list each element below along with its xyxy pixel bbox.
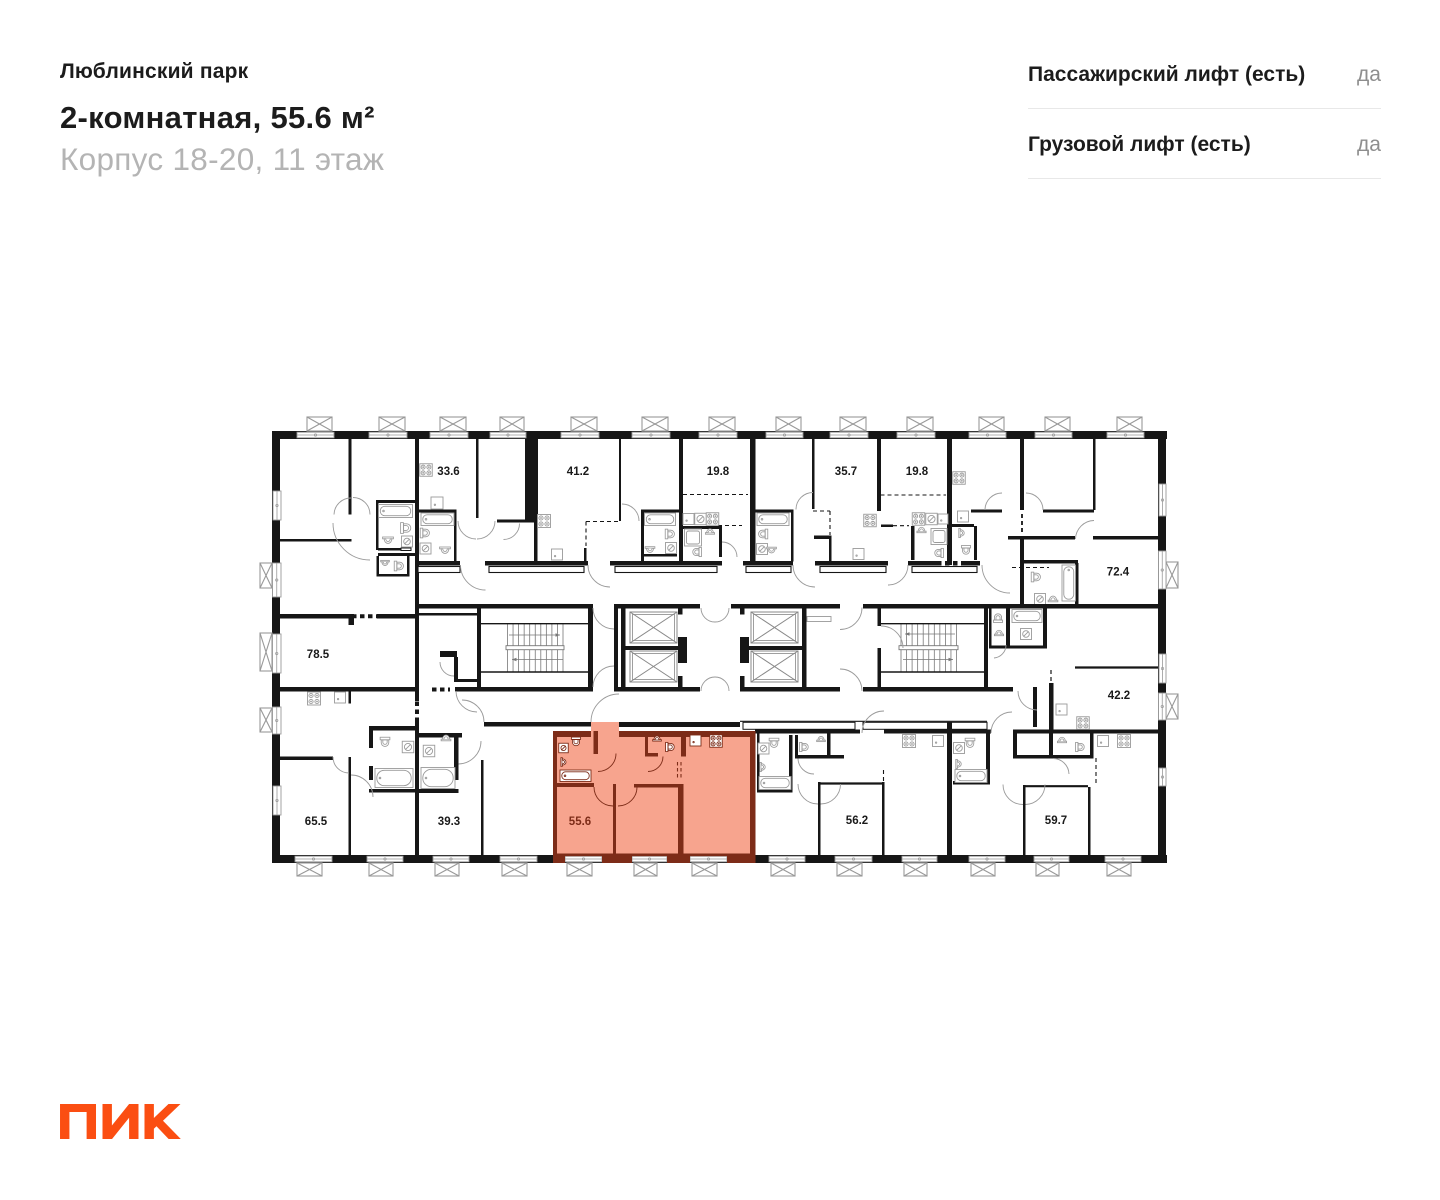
svg-text:65.5: 65.5	[305, 816, 328, 828]
svg-text:42.2: 42.2	[1108, 690, 1130, 702]
svg-text:19.8: 19.8	[707, 466, 730, 478]
svg-text:56.2: 56.2	[846, 815, 868, 827]
svg-text:72.4: 72.4	[1107, 567, 1130, 579]
svg-text:33.6: 33.6	[437, 466, 459, 478]
svg-text:39.3: 39.3	[438, 816, 460, 828]
svg-text:35.7: 35.7	[835, 466, 857, 478]
svg-text:41.2: 41.2	[567, 466, 589, 478]
svg-text:55.6: 55.6	[569, 816, 591, 828]
svg-text:19.8: 19.8	[906, 466, 929, 478]
svg-text:59.7: 59.7	[1045, 815, 1067, 827]
svg-text:78.5: 78.5	[307, 649, 330, 661]
